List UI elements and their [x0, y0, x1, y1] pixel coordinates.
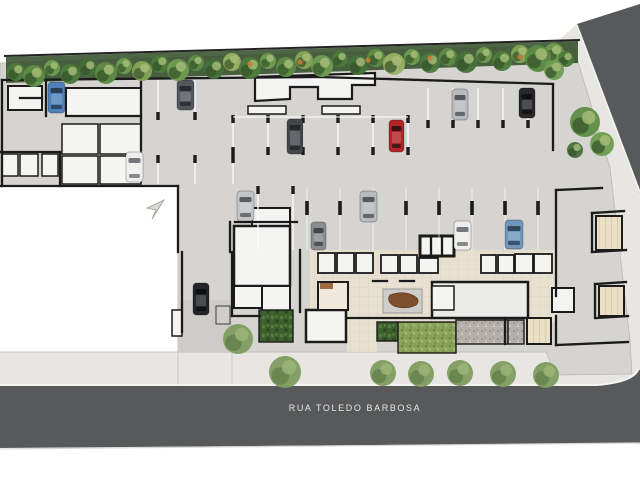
tree-highlight: [282, 360, 296, 374]
column: [266, 115, 269, 123]
flowering-accent: [297, 59, 302, 64]
tree-highlight: [482, 49, 489, 56]
tree: [116, 58, 132, 74]
windshield: [522, 94, 533, 99]
car-roof: [240, 203, 251, 212]
windshield: [392, 126, 402, 131]
rear-window: [522, 110, 532, 114]
flowering-accent: [365, 57, 370, 62]
tree-highlight: [230, 55, 238, 63]
car-roof: [180, 92, 191, 101]
tree: [570, 107, 600, 137]
windshield: [180, 86, 192, 91]
tree-highlight: [266, 55, 273, 62]
tree: [188, 55, 204, 71]
tree-highlight: [320, 58, 330, 68]
car-roof: [51, 94, 62, 104]
rear-window: [392, 144, 401, 148]
tree: [383, 53, 405, 75]
tree: [7, 63, 25, 81]
column: [231, 115, 234, 123]
vacant-lot: [0, 187, 177, 351]
column: [193, 155, 196, 163]
tree-highlight: [582, 111, 596, 125]
tree-highlight: [194, 57, 201, 64]
flowering-accent: [517, 54, 522, 59]
room: [420, 236, 454, 256]
tree-highlight: [284, 60, 293, 69]
room: [534, 254, 552, 273]
windshield: [51, 88, 63, 93]
gravel-planter: [456, 320, 508, 344]
tree-highlight: [410, 51, 417, 58]
tree: [269, 356, 301, 388]
tree-highlight: [518, 47, 526, 55]
windshield: [508, 226, 521, 231]
column: [426, 120, 429, 128]
rear-window: [180, 102, 191, 106]
rear-window: [196, 307, 206, 311]
column: [193, 112, 196, 120]
tree: [455, 51, 477, 73]
black-car: [193, 283, 209, 315]
tree: [590, 132, 614, 156]
room: [481, 255, 496, 273]
tree-highlight: [500, 364, 512, 376]
site-plan-page: RUA TOLEDO BARBOSA: [0, 0, 640, 480]
tree: [544, 60, 564, 80]
tree: [44, 60, 60, 76]
rear-window: [314, 242, 323, 246]
street-name-label: RUA TOLEDO BARBOSA: [250, 403, 460, 413]
tree-highlight: [50, 62, 57, 69]
white-car: [126, 152, 143, 182]
column: [336, 115, 339, 123]
room: [322, 106, 360, 114]
column: [305, 201, 309, 215]
room: [234, 226, 290, 286]
rear-window: [290, 146, 300, 150]
blue-car: [505, 220, 523, 249]
room: [599, 286, 624, 316]
tree: [367, 49, 385, 67]
tree: [490, 361, 516, 387]
column: [256, 186, 259, 194]
silver-car: [452, 89, 468, 120]
tree: [311, 55, 333, 77]
column: [371, 115, 374, 123]
tree-highlight: [158, 57, 166, 65]
car-roof: [455, 101, 465, 111]
tree: [223, 324, 253, 354]
column: [156, 155, 159, 163]
tree-highlight: [535, 48, 547, 60]
column: [451, 120, 454, 128]
tree: [239, 57, 261, 79]
column: [406, 147, 409, 155]
tree-highlight: [418, 364, 430, 376]
dark-gray-car: [287, 119, 303, 154]
tree: [476, 47, 492, 63]
column: [476, 120, 479, 128]
tree-highlight: [235, 328, 249, 342]
tree: [167, 59, 189, 81]
tree-highlight: [380, 363, 392, 375]
tree: [204, 59, 224, 79]
column: [536, 201, 540, 215]
room: [337, 253, 354, 273]
tree-highlight: [302, 53, 310, 61]
column: [470, 201, 474, 215]
tree-highlight: [356, 58, 365, 67]
shrub-planter: [377, 322, 398, 341]
tree-highlight: [552, 63, 561, 72]
tree-highlight: [573, 144, 580, 151]
column: [156, 112, 159, 120]
car-roof: [129, 164, 140, 173]
car-roof: [457, 233, 468, 241]
room: [2, 154, 18, 176]
column: [231, 147, 234, 155]
tree: [79, 59, 97, 77]
tree: [439, 48, 457, 66]
white-car: [454, 221, 471, 250]
rear-window: [129, 174, 140, 178]
rear-window: [457, 242, 468, 246]
tree: [23, 65, 45, 87]
tree-highlight: [552, 46, 561, 55]
room: [432, 286, 454, 310]
tree-highlight: [464, 54, 474, 64]
room: [400, 255, 417, 273]
tree-highlight: [543, 365, 555, 377]
column: [231, 155, 234, 163]
tree-highlight: [446, 50, 454, 58]
windshield: [290, 125, 301, 130]
column: [406, 115, 409, 123]
tree: [132, 61, 152, 81]
column: [266, 147, 269, 155]
room: [62, 156, 98, 184]
tree-highlight: [392, 56, 402, 66]
tree: [447, 360, 473, 386]
rear-window: [363, 214, 374, 218]
rear-window: [508, 241, 520, 245]
tree-highlight: [176, 62, 186, 72]
tree-highlight: [374, 51, 382, 59]
car-roof: [363, 203, 374, 213]
gray-minivan: [311, 222, 326, 250]
tree: [567, 142, 583, 158]
tree: [492, 51, 512, 71]
tree-highlight: [68, 67, 77, 76]
room: [419, 258, 438, 273]
column: [338, 201, 342, 215]
tree: [223, 53, 241, 71]
room: [381, 255, 398, 273]
column: [501, 120, 504, 128]
room: [66, 88, 141, 116]
entry-wood-mat: [320, 283, 333, 289]
column: [503, 201, 507, 215]
windshield: [314, 228, 324, 233]
tree-highlight: [14, 65, 22, 73]
tree-highlight: [600, 135, 611, 146]
room: [527, 318, 551, 344]
room: [100, 124, 141, 154]
room: [62, 124, 98, 154]
windshield: [129, 158, 141, 163]
tree-highlight: [500, 54, 509, 63]
flowering-accent: [427, 55, 432, 60]
tree: [295, 51, 313, 69]
room: [356, 253, 373, 273]
tree: [60, 64, 80, 84]
room: [515, 254, 533, 273]
tree: [151, 55, 169, 73]
blue-car: [48, 82, 65, 113]
red-car: [389, 120, 404, 152]
tree: [370, 360, 396, 386]
column: [371, 147, 374, 155]
lawn-planter: [398, 322, 456, 353]
room: [498, 255, 514, 273]
shrub-planter: [259, 310, 293, 342]
tree-highlight: [104, 65, 114, 75]
car-roof: [392, 132, 401, 143]
car-roof: [508, 232, 520, 240]
room: [248, 106, 286, 114]
column: [404, 201, 408, 215]
car-roof: [522, 100, 532, 109]
windshield: [240, 197, 252, 202]
rear-window: [455, 112, 465, 116]
room: [172, 310, 182, 336]
column: [437, 201, 441, 215]
flowering-accent: [247, 61, 252, 66]
room: [318, 253, 335, 273]
tree-highlight: [564, 53, 571, 60]
rear-window: [240, 213, 251, 217]
tree-highlight: [86, 61, 94, 69]
windshield: [457, 227, 469, 232]
car-roof: [196, 295, 206, 306]
room: [596, 216, 622, 250]
column: [291, 186, 294, 194]
tree: [404, 49, 420, 65]
gravel-planter: [508, 320, 524, 344]
room: [20, 154, 38, 176]
tree-highlight: [338, 53, 345, 60]
tree: [533, 362, 559, 388]
car-roof: [314, 234, 323, 241]
windshield: [363, 197, 375, 202]
room: [306, 310, 346, 342]
tree: [95, 62, 117, 84]
tree-highlight: [140, 64, 149, 73]
room: [234, 286, 262, 308]
tree: [332, 51, 348, 67]
black-car: [519, 88, 535, 118]
room: [42, 154, 58, 176]
tree-highlight: [32, 68, 42, 78]
tree-highlight: [212, 62, 221, 71]
tree: [276, 57, 296, 77]
silver-car: [237, 191, 254, 221]
tree: [348, 55, 368, 75]
gray-car: [177, 80, 194, 110]
car-roof: [290, 131, 300, 145]
tree-highlight: [122, 60, 129, 67]
tree: [408, 361, 434, 387]
tree: [260, 53, 276, 69]
column: [336, 147, 339, 155]
tree-highlight: [457, 363, 469, 375]
silver-car: [360, 191, 377, 222]
room: [216, 306, 230, 324]
column: [526, 120, 529, 128]
windshield: [455, 95, 466, 100]
rear-window: [51, 105, 62, 109]
windshield: [196, 289, 207, 294]
